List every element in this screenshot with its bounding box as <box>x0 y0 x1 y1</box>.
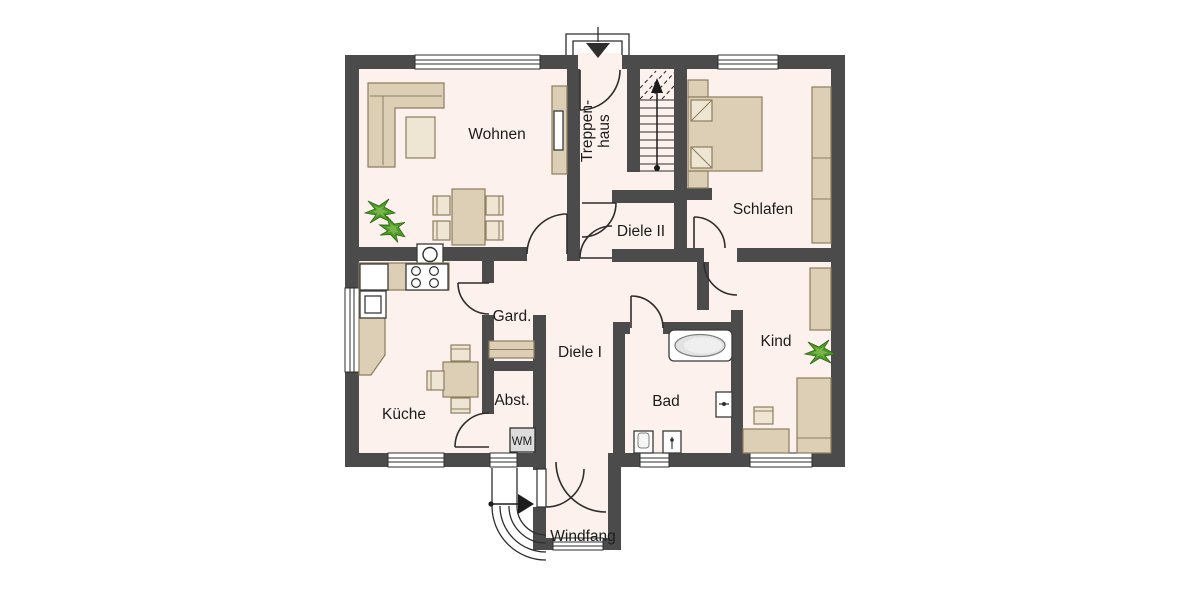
window-abst <box>490 453 517 467</box>
coffee-table <box>406 117 435 158</box>
label-treppenhaus-line2: haus <box>596 114 613 148</box>
garderobe-shelf <box>489 341 534 358</box>
single-bed <box>797 378 831 453</box>
bathroom-sink <box>716 392 732 417</box>
entrance-arrow-right-icon <box>518 494 534 514</box>
nightstand <box>688 80 708 97</box>
nightstand <box>688 171 708 188</box>
window-wohnen <box>415 55 540 69</box>
label-windfang: Windfang <box>550 528 615 545</box>
window-kueche-bottom <box>388 453 444 467</box>
desk-chair <box>754 407 773 424</box>
toilet <box>634 431 653 453</box>
label-abst: Abst. <box>494 392 529 409</box>
label-schlafen: Schlafen <box>733 201 793 218</box>
label-gard: Gard. <box>493 308 532 325</box>
desk <box>743 429 789 453</box>
bathtub <box>669 330 732 361</box>
label-diele2: Diele II <box>617 223 665 240</box>
kitchen-sink <box>360 291 386 318</box>
label-bad: Bad <box>652 393 680 410</box>
stove <box>406 264 448 290</box>
window-schlafen <box>718 55 778 69</box>
floor-plan: WM <box>0 0 1200 600</box>
window-kind <box>750 453 812 467</box>
washing-machine: WM <box>510 428 535 452</box>
label-wohnen: Wohnen <box>468 126 525 143</box>
dining-table <box>452 189 485 245</box>
label-kind: Kind <box>760 333 791 350</box>
wardrobe <box>812 87 831 243</box>
tv-icon <box>554 111 563 150</box>
label-kueche: Küche <box>382 406 426 423</box>
wardrobe <box>810 268 831 330</box>
window-bad <box>640 453 669 467</box>
kitchen-table <box>443 362 478 397</box>
window-kueche-left <box>345 288 359 372</box>
fridge <box>360 264 388 290</box>
chimney-symbol <box>417 244 443 265</box>
washing-machine-label: WM <box>512 436 532 448</box>
entrance-direction-arrow <box>488 494 534 514</box>
label-treppenhaus-line1: Treppen- <box>579 100 596 162</box>
bidet <box>663 431 681 453</box>
label-diele1: Diele I <box>558 344 602 361</box>
floor-plan-drawing: WM <box>0 0 1200 600</box>
